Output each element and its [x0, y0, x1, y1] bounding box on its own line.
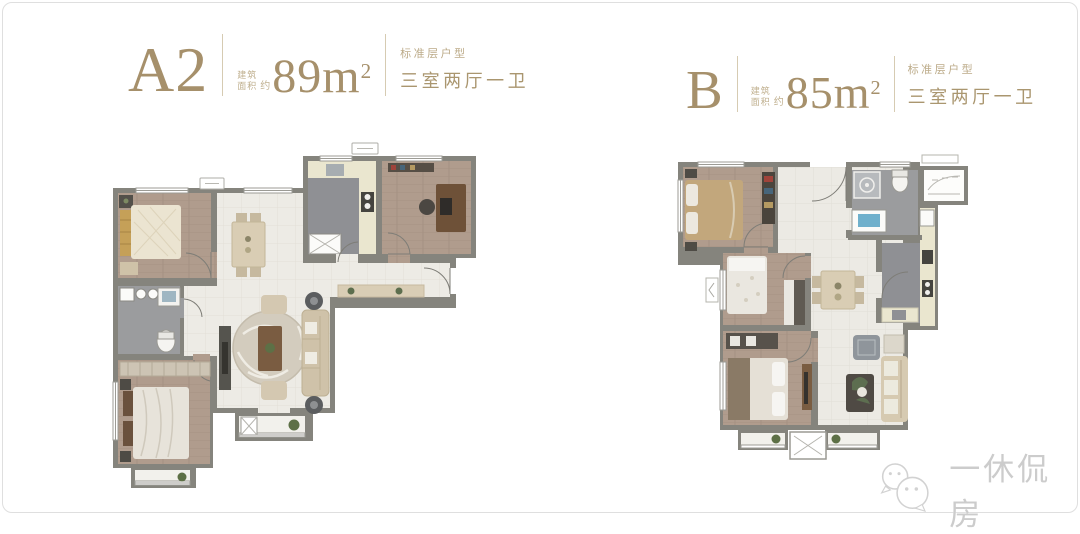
washer [120, 288, 134, 301]
area-value: 89m2 [272, 58, 371, 96]
plant [289, 420, 300, 431]
plan-b-area: 建筑 面积 约 85m2 [751, 75, 881, 112]
nightstand [685, 242, 697, 251]
armchair [853, 335, 880, 360]
divider [222, 34, 223, 96]
dining-set [232, 213, 265, 277]
layout-type: 三室两厅一卫 [908, 83, 1037, 109]
tv [804, 372, 808, 404]
area-value: 85m2 [786, 75, 881, 112]
hall-floor [184, 286, 217, 356]
area-label: 建筑 面积 [751, 86, 771, 109]
divider [737, 56, 738, 112]
kitchen-sink [326, 164, 344, 176]
watermark: 一休侃房 [874, 444, 1080, 534]
wardrobe [120, 362, 210, 376]
plant [832, 435, 841, 444]
side-table [884, 335, 904, 353]
pillow [123, 391, 133, 416]
plant [265, 343, 275, 353]
armchair [261, 295, 287, 314]
divider [385, 34, 386, 96]
floor-type: 标准层户型 [908, 61, 1037, 77]
fridge [920, 210, 934, 226]
pillows [120, 210, 131, 256]
laundry-balcony [924, 170, 964, 201]
floorplan-b [670, 150, 982, 482]
area-approx: 约 [774, 93, 784, 108]
pillows [729, 258, 765, 271]
plan-a2-description: 标准层户型 三室两厅一卫 [400, 45, 529, 93]
plant [178, 473, 187, 482]
layout-type: 三室两厅一卫 [400, 67, 529, 93]
pillow [686, 184, 698, 206]
chat-bubbles-logo [874, 460, 945, 518]
desk-chair [419, 199, 435, 215]
nightstand [120, 451, 131, 462]
nightstand [120, 379, 131, 390]
plan-a2-title: A2 [128, 44, 208, 96]
plan-b-description: 标准层户型 三室两厅一卫 [908, 61, 1037, 109]
plan-b-header: B 建筑 面积 约 85m2 标准层户型 三室两厅一卫 [686, 56, 1037, 112]
floor-type: 标准层户型 [400, 45, 529, 61]
watermark-brand: 一休侃房 [949, 444, 1080, 534]
pillow [772, 362, 785, 386]
monitor [440, 198, 452, 215]
kitchen-sink [922, 250, 933, 264]
plan-b-title: B [686, 67, 724, 112]
dining-table [821, 271, 855, 309]
entry-corridor [338, 285, 424, 297]
divider [894, 56, 895, 112]
bench [120, 262, 138, 275]
armchair [261, 381, 287, 400]
dimension-tag [922, 155, 958, 163]
area-approx: 约 [260, 77, 270, 92]
plant [772, 435, 781, 444]
area-label: 建筑 面积 [237, 70, 257, 93]
dining-table [232, 222, 265, 267]
pillow [772, 392, 785, 416]
nightstand [685, 169, 697, 178]
plan-a2-area: 建筑 面积 约 89m2 [237, 58, 371, 96]
plan-a2-header: A2 建筑 面积 约 89m2 标准层户型 三室两厅一卫 [128, 34, 529, 96]
floorplan-a2 [98, 136, 490, 488]
bathtub-sink [858, 214, 880, 227]
blanket [728, 358, 750, 420]
dimension-tags [706, 278, 718, 302]
pillow [123, 421, 133, 446]
tv [222, 342, 228, 374]
pillow [686, 212, 698, 234]
